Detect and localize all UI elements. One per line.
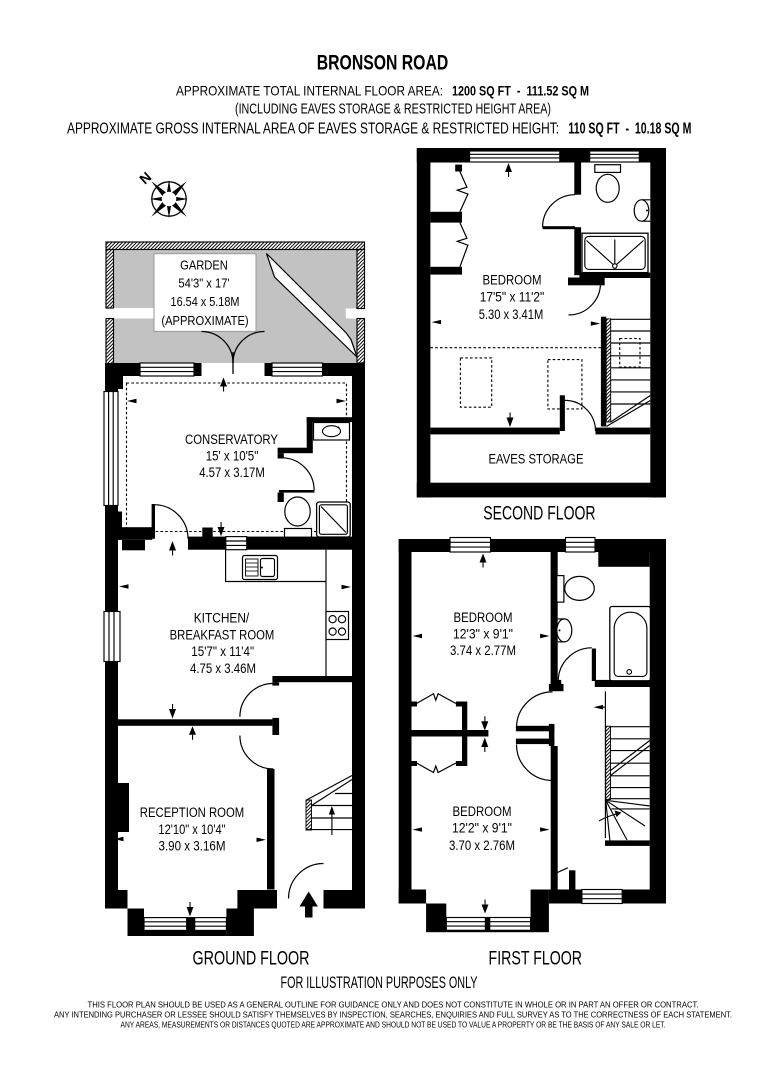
- svg-text:4.57 x 3.17M: 4.57 x 3.17M: [199, 465, 265, 480]
- svg-text:1200 SQ FT - 111.52 SQ M: 1200 SQ FT - 111.52 SQ M: [452, 83, 589, 99]
- svg-text:3.74 x 2.77M: 3.74 x 2.77M: [450, 643, 516, 658]
- svg-text:ANY AREAS, MEASUREMENTS OR DIS: ANY AREAS, MEASUREMENTS OR DISTANCES QUO…: [121, 1020, 666, 1030]
- svg-text:17'5" x 11'2": 17'5" x 11'2": [480, 290, 545, 305]
- svg-text:12'2" x 9'1": 12'2" x 9'1": [452, 820, 512, 835]
- svg-text:16.54 x 5.18M: 16.54 x 5.18M: [171, 294, 240, 309]
- svg-text:CONSERVATORY: CONSERVATORY: [185, 432, 278, 447]
- svg-text:12'3" x 9'1": 12'3" x 9'1": [453, 627, 513, 642]
- svg-text:BREAKFAST ROOM: BREAKFAST ROOM: [170, 627, 275, 642]
- svg-text:(APPROXIMATE): (APPROXIMATE): [161, 313, 248, 328]
- svg-text:110 SQ FT - 10.18 SQ M: 110 SQ FT - 10.18 SQ M: [568, 121, 691, 138]
- svg-text:GROUND FLOOR: GROUND FLOOR: [193, 947, 310, 969]
- svg-text:BRONSON ROAD: BRONSON ROAD: [317, 50, 449, 74]
- svg-text:KITCHEN/: KITCHEN/: [194, 611, 250, 626]
- svg-text:4.75 x 3.46M: 4.75 x 3.46M: [190, 661, 256, 676]
- svg-text:RECEPTION ROOM: RECEPTION ROOM: [140, 805, 244, 820]
- svg-text:5.30 x 3.41M: 5.30 x 3.41M: [479, 307, 544, 322]
- svg-text:FOR ILLUSTRATION PURPOSES ONLY: FOR ILLUSTRATION PURPOSES ONLY: [281, 974, 478, 992]
- svg-text:BEDROOM: BEDROOM: [454, 610, 513, 625]
- svg-text:BEDROOM: BEDROOM: [453, 804, 512, 819]
- svg-text:EAVES STORAGE: EAVES STORAGE: [489, 452, 584, 467]
- svg-text:12'10" x 10'4": 12'10" x 10'4": [158, 822, 225, 837]
- svg-text:APPROXIMATE GROSS INTERNAL ARE: APPROXIMATE GROSS INTERNAL AREA OF EAVES…: [67, 121, 559, 138]
- svg-text:(INCLUDING EAVES STORAGE & RES: (INCLUDING EAVES STORAGE & RESTRICTED HE…: [235, 101, 551, 118]
- svg-text:3.90 x 3.16M: 3.90 x 3.16M: [159, 839, 226, 854]
- svg-text:ANY INTENDING PURCHASER OR LES: ANY INTENDING PURCHASER OR LESSEE SHOULD…: [54, 1010, 732, 1020]
- svg-text:BEDROOM: BEDROOM: [483, 272, 542, 287]
- svg-text:SECOND FLOOR: SECOND FLOOR: [483, 503, 595, 525]
- svg-text:THIS FLOOR PLAN SHOULD BE USED: THIS FLOOR PLAN SHOULD BE USED AS A GENE…: [88, 1000, 699, 1010]
- svg-text:GARDEN: GARDEN: [180, 258, 228, 273]
- svg-text:FIRST FLOOR: FIRST FLOOR: [489, 947, 583, 969]
- svg-text:3.70 x 2.76M: 3.70 x 2.76M: [449, 838, 515, 853]
- svg-text:15' x 10'5": 15' x 10'5": [206, 449, 259, 464]
- svg-text:APPROXIMATE TOTAL INTERNAL FLO: APPROXIMATE TOTAL INTERNAL FLOOR AREA:: [176, 83, 443, 99]
- svg-text:54'3" x 17': 54'3" x 17': [178, 276, 229, 291]
- svg-text:15'7" x 11'4": 15'7" x 11'4": [191, 644, 254, 659]
